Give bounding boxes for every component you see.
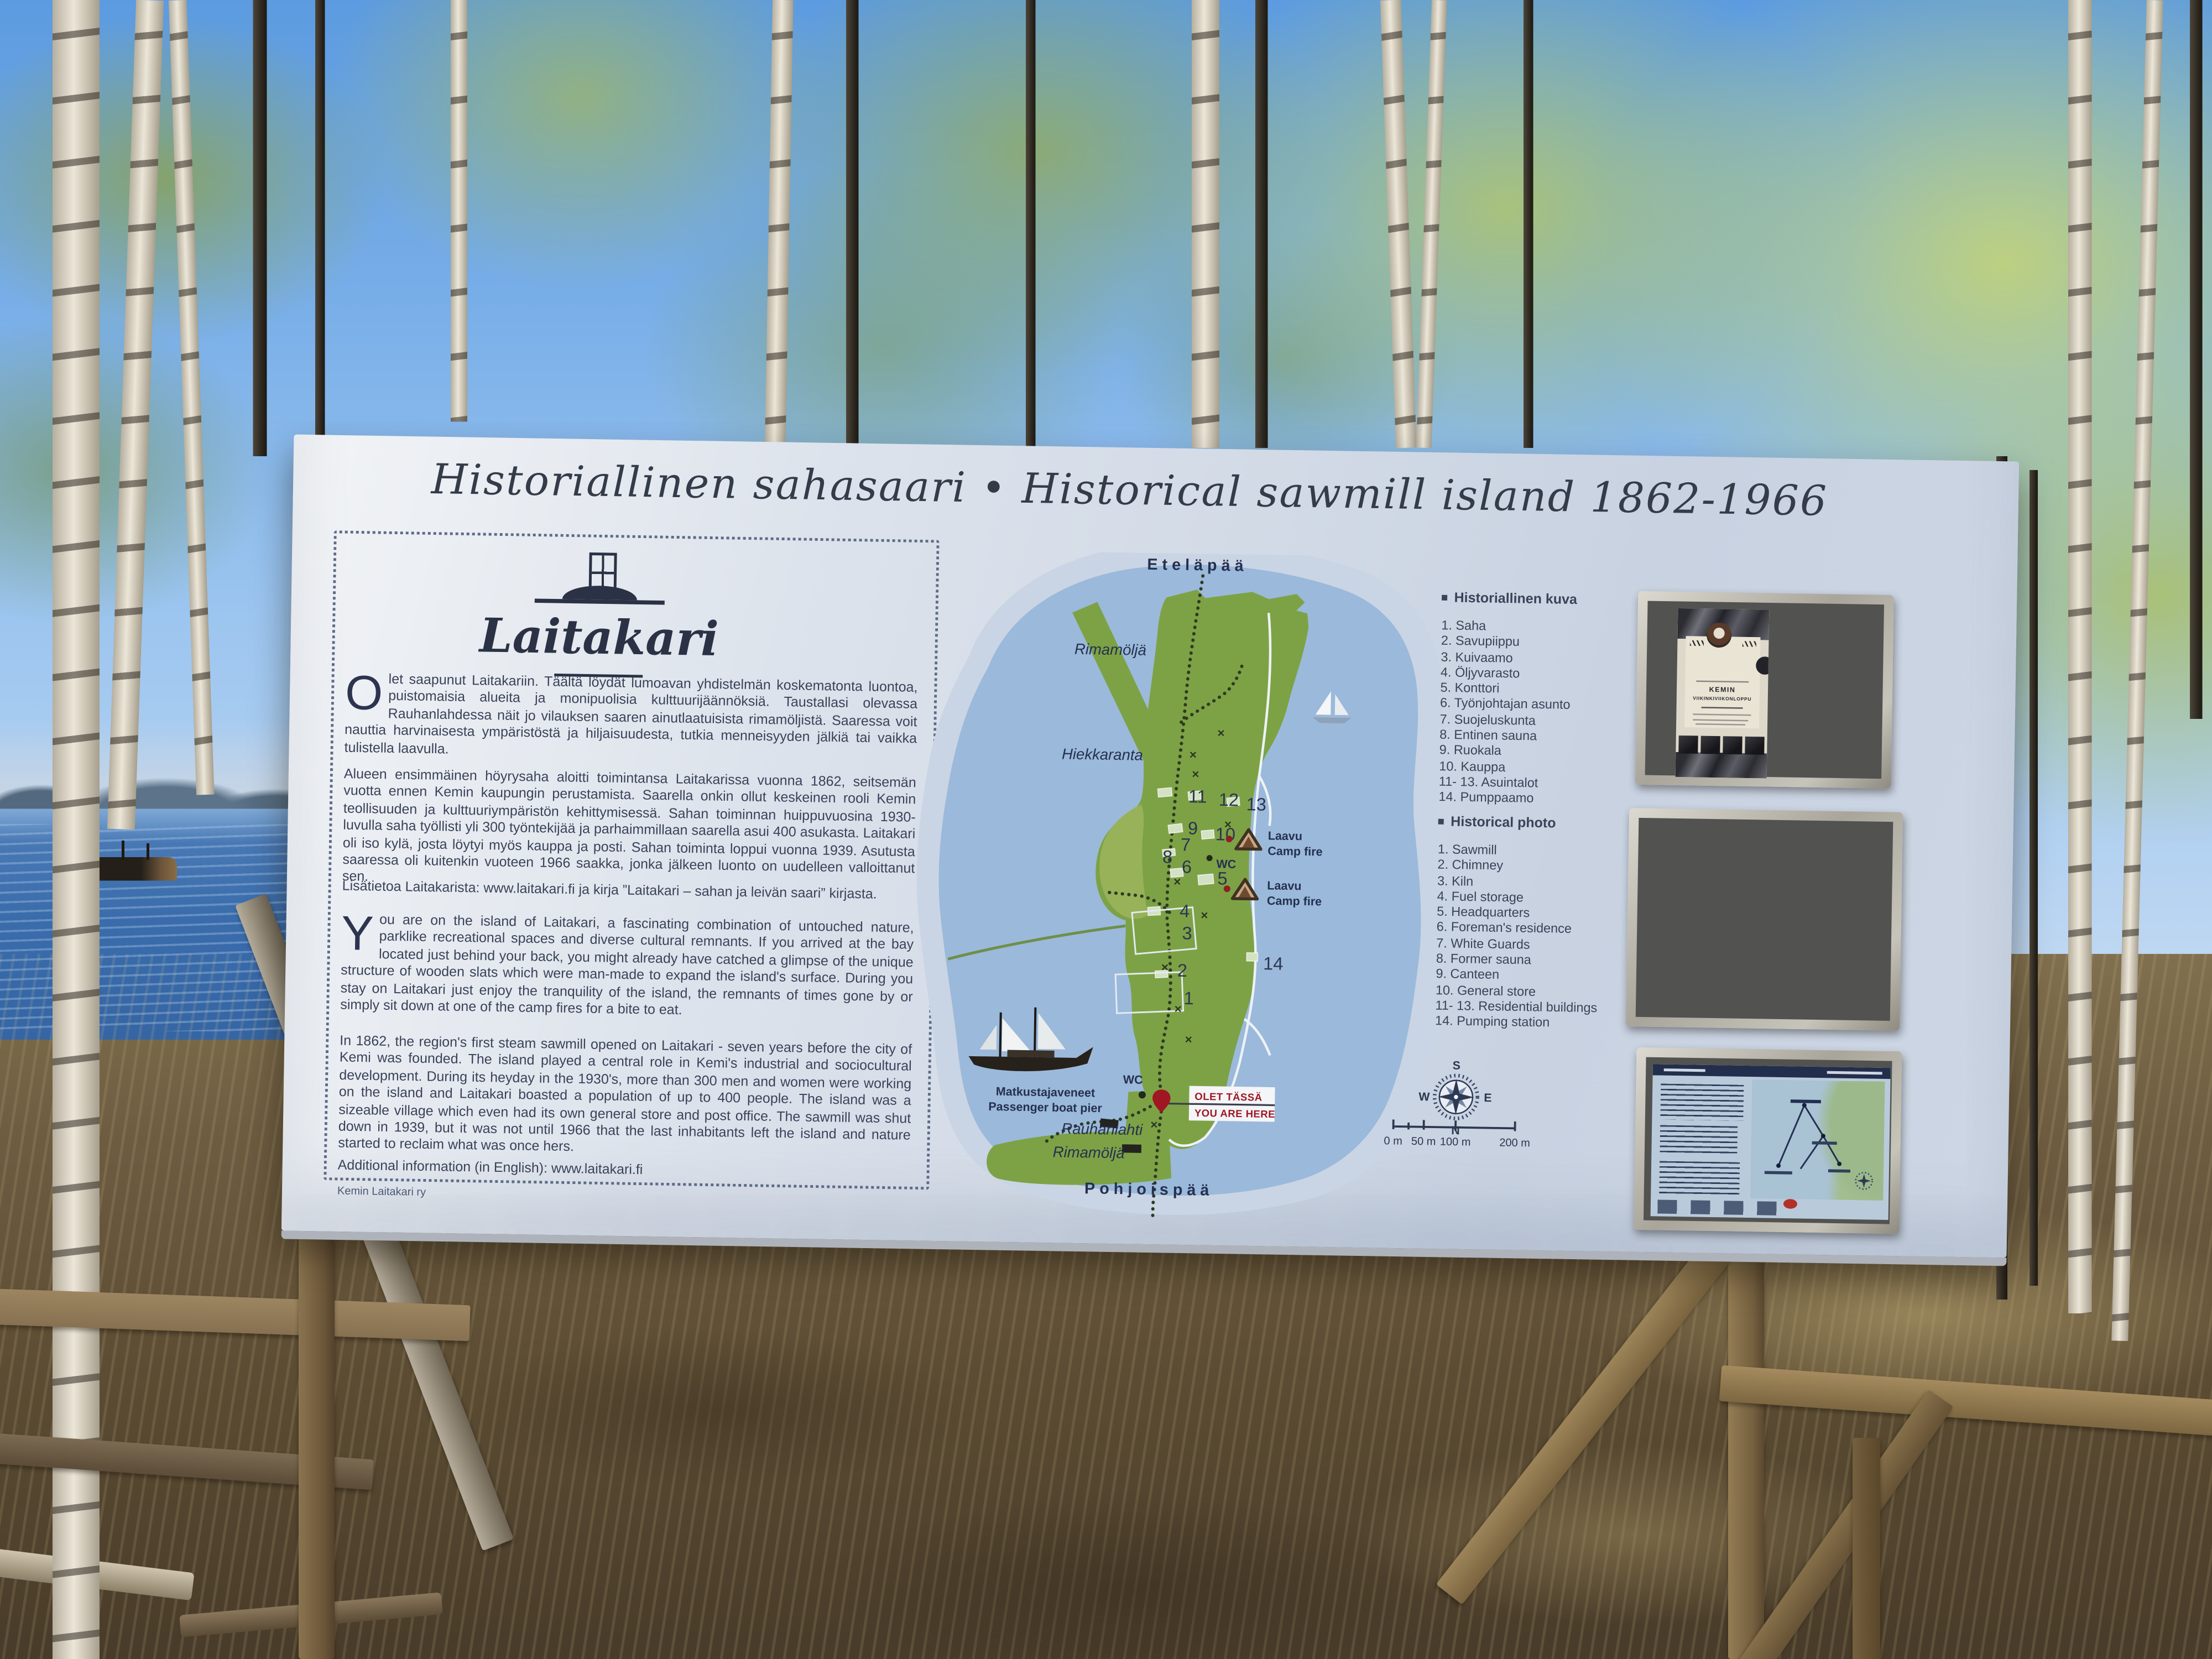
sign-title: Historiallinen sahasaari • Historical sa… bbox=[293, 454, 1966, 529]
label-rimamolja-upper: Rimamöljä bbox=[1074, 640, 1146, 659]
foreground-birch-trunk bbox=[53, 0, 100, 1659]
tree-trunk bbox=[1524, 0, 1533, 448]
svg-text:8: 8 bbox=[1162, 847, 1173, 867]
tree-trunk bbox=[2030, 470, 2038, 1286]
label-bay: Rauhanlahti bbox=[1061, 1120, 1143, 1138]
scale-tick: 100 m bbox=[1440, 1136, 1471, 1149]
scale-tick: 50 m bbox=[1411, 1135, 1436, 1148]
history-paragraph-fi: Alueen ensimmäinen höyrysaha aloitti toi… bbox=[342, 767, 916, 896]
sheet-text-block bbox=[1659, 1161, 1740, 1196]
square-bullet-icon bbox=[1438, 819, 1444, 825]
dropcap: O bbox=[345, 673, 383, 714]
support-post bbox=[1728, 1251, 1764, 1659]
frame-backing bbox=[1644, 1057, 1892, 1224]
tree-trunk bbox=[2190, 0, 2203, 719]
sheet-logo-strip bbox=[1657, 1199, 1782, 1215]
svg-text:11: 11 bbox=[1188, 786, 1207, 807]
svg-text:12: 12 bbox=[1219, 790, 1239, 810]
svg-text:3: 3 bbox=[1182, 923, 1192, 943]
svg-text:13: 13 bbox=[1246, 794, 1266, 815]
svg-text:6: 6 bbox=[1182, 857, 1192, 877]
svg-text:✕: ✕ bbox=[1173, 877, 1181, 888]
laavu-label: Laavu bbox=[1267, 879, 1302, 893]
svg-text:✕: ✕ bbox=[1174, 1004, 1182, 1015]
tree-trunk bbox=[253, 0, 267, 456]
label-beach: Hiekkaranta bbox=[1062, 745, 1143, 763]
birch-trunk bbox=[1192, 0, 1219, 448]
svg-text:14: 14 bbox=[1263, 953, 1284, 974]
svg-text:✕: ✕ bbox=[1191, 769, 1199, 780]
wc-label: WC bbox=[1123, 1073, 1143, 1087]
svg-text:7: 7 bbox=[1181, 834, 1191, 854]
sheet-text-block bbox=[1660, 1125, 1738, 1157]
svg-text:W: W bbox=[1418, 1090, 1430, 1103]
svg-text:✕: ✕ bbox=[1185, 1034, 1193, 1045]
history-paragraph-en: In 1862, the region's first steam sawmil… bbox=[338, 1034, 912, 1163]
information-sign-board: Historiallinen sahasaari • Historical sa… bbox=[281, 435, 2019, 1258]
sheet-red-logo bbox=[1783, 1199, 1797, 1209]
label-south-end: Eteläpää bbox=[1147, 556, 1248, 575]
tree-trunk bbox=[1026, 0, 1036, 448]
pier-label-fi: Matkustajaveneet bbox=[996, 1085, 1095, 1100]
campfire-label: Camp fire bbox=[1267, 894, 1322, 909]
svg-text:YOU ARE HERE: YOU ARE HERE bbox=[1194, 1107, 1275, 1120]
scale-tick: 200 m bbox=[1499, 1136, 1530, 1149]
legend-finnish: Historiallinen kuva 1. Saha 2. Savupiipp… bbox=[1438, 591, 1663, 808]
frame-backing bbox=[1636, 818, 1893, 1021]
support-post bbox=[1853, 1438, 1880, 1659]
label-north-end: Pohjoispää bbox=[1084, 1180, 1214, 1199]
dropcap: Y bbox=[341, 914, 374, 954]
label-rimamolja-lower: Rimamöljä bbox=[1053, 1143, 1125, 1161]
support-post bbox=[299, 1217, 335, 1659]
birch-trunk bbox=[451, 0, 467, 422]
notice-frame-middle-empty bbox=[1626, 808, 1903, 1031]
sawmill-tower-icon bbox=[582, 552, 618, 600]
notice-frame-bottom bbox=[1634, 1047, 1902, 1234]
boat-mast bbox=[147, 843, 149, 860]
frame-backing: KEMIN VIIKINKIVIIKONLOPPU bbox=[1645, 601, 1884, 779]
svg-text:E: E bbox=[1484, 1091, 1492, 1104]
svg-text:10: 10 bbox=[1215, 824, 1236, 844]
svg-text:1: 1 bbox=[1183, 988, 1194, 1008]
logo-wordmark: Laitakari bbox=[467, 609, 731, 668]
sheet-text-block bbox=[1660, 1084, 1744, 1121]
svg-text:✕: ✕ bbox=[1150, 1119, 1158, 1130]
poster-title-2: VIIKINKIVIIKONLOPPU bbox=[1685, 696, 1760, 702]
sheet-region-map bbox=[1750, 1079, 1885, 1201]
svg-text:✕: ✕ bbox=[1161, 962, 1169, 973]
poster-title-1: KEMIN bbox=[1685, 686, 1760, 695]
old-barge-boat bbox=[97, 857, 177, 881]
pier-label-en: Passenger boat pier bbox=[988, 1100, 1103, 1115]
intro-paragraph-fi: Olet saapunut Laitakariin. Täältä löydät… bbox=[344, 672, 917, 766]
svg-text:✕: ✕ bbox=[1189, 749, 1197, 760]
svg-text:✕: ✕ bbox=[1217, 728, 1225, 739]
area-map-sheet bbox=[1651, 1064, 1891, 1220]
svg-text:✕: ✕ bbox=[1200, 910, 1208, 921]
svg-text:5: 5 bbox=[1217, 868, 1228, 888]
laavu-label: Laavu bbox=[1268, 829, 1303, 843]
birch-trunk bbox=[2068, 0, 2092, 1313]
laitakari-logo: Laitakari bbox=[467, 551, 732, 679]
poster-photo-strip bbox=[1678, 735, 1764, 755]
photo-of-information-sign: Historiallinen sahasaari • Historical sa… bbox=[0, 0, 2212, 1659]
poster-panel: KEMIN VIIKINKIVIIKONLOPPU bbox=[1684, 636, 1761, 728]
viking-weekend-poster: KEMIN VIIKINKIVIIKONLOPPU bbox=[1676, 608, 1770, 779]
square-bullet-icon bbox=[1442, 595, 1447, 601]
tree-trunk bbox=[846, 0, 859, 448]
notice-frame-top: KEMIN VIIKINKIVIIKONLOPPU bbox=[1635, 591, 1894, 789]
svg-text:OLET TÄSSÄ: OLET TÄSSÄ bbox=[1194, 1091, 1262, 1103]
svg-text:S: S bbox=[1453, 1059, 1461, 1072]
publisher-credit: Kemin Laitakari ry bbox=[337, 1185, 426, 1198]
tree-trunk bbox=[315, 0, 325, 442]
tree-trunk bbox=[1255, 0, 1268, 448]
svg-text:4: 4 bbox=[1180, 901, 1190, 921]
scale-tick: 0 m bbox=[1384, 1135, 1402, 1147]
wc-label: WC bbox=[1216, 857, 1236, 871]
campfire-label: Camp fire bbox=[1267, 844, 1323, 859]
pier-structure bbox=[1122, 1144, 1141, 1153]
intro-paragraph-en: You are on the island of Laitakari, a fa… bbox=[340, 912, 914, 1024]
boat-mast bbox=[122, 841, 124, 860]
svg-text:2: 2 bbox=[1177, 961, 1188, 980]
